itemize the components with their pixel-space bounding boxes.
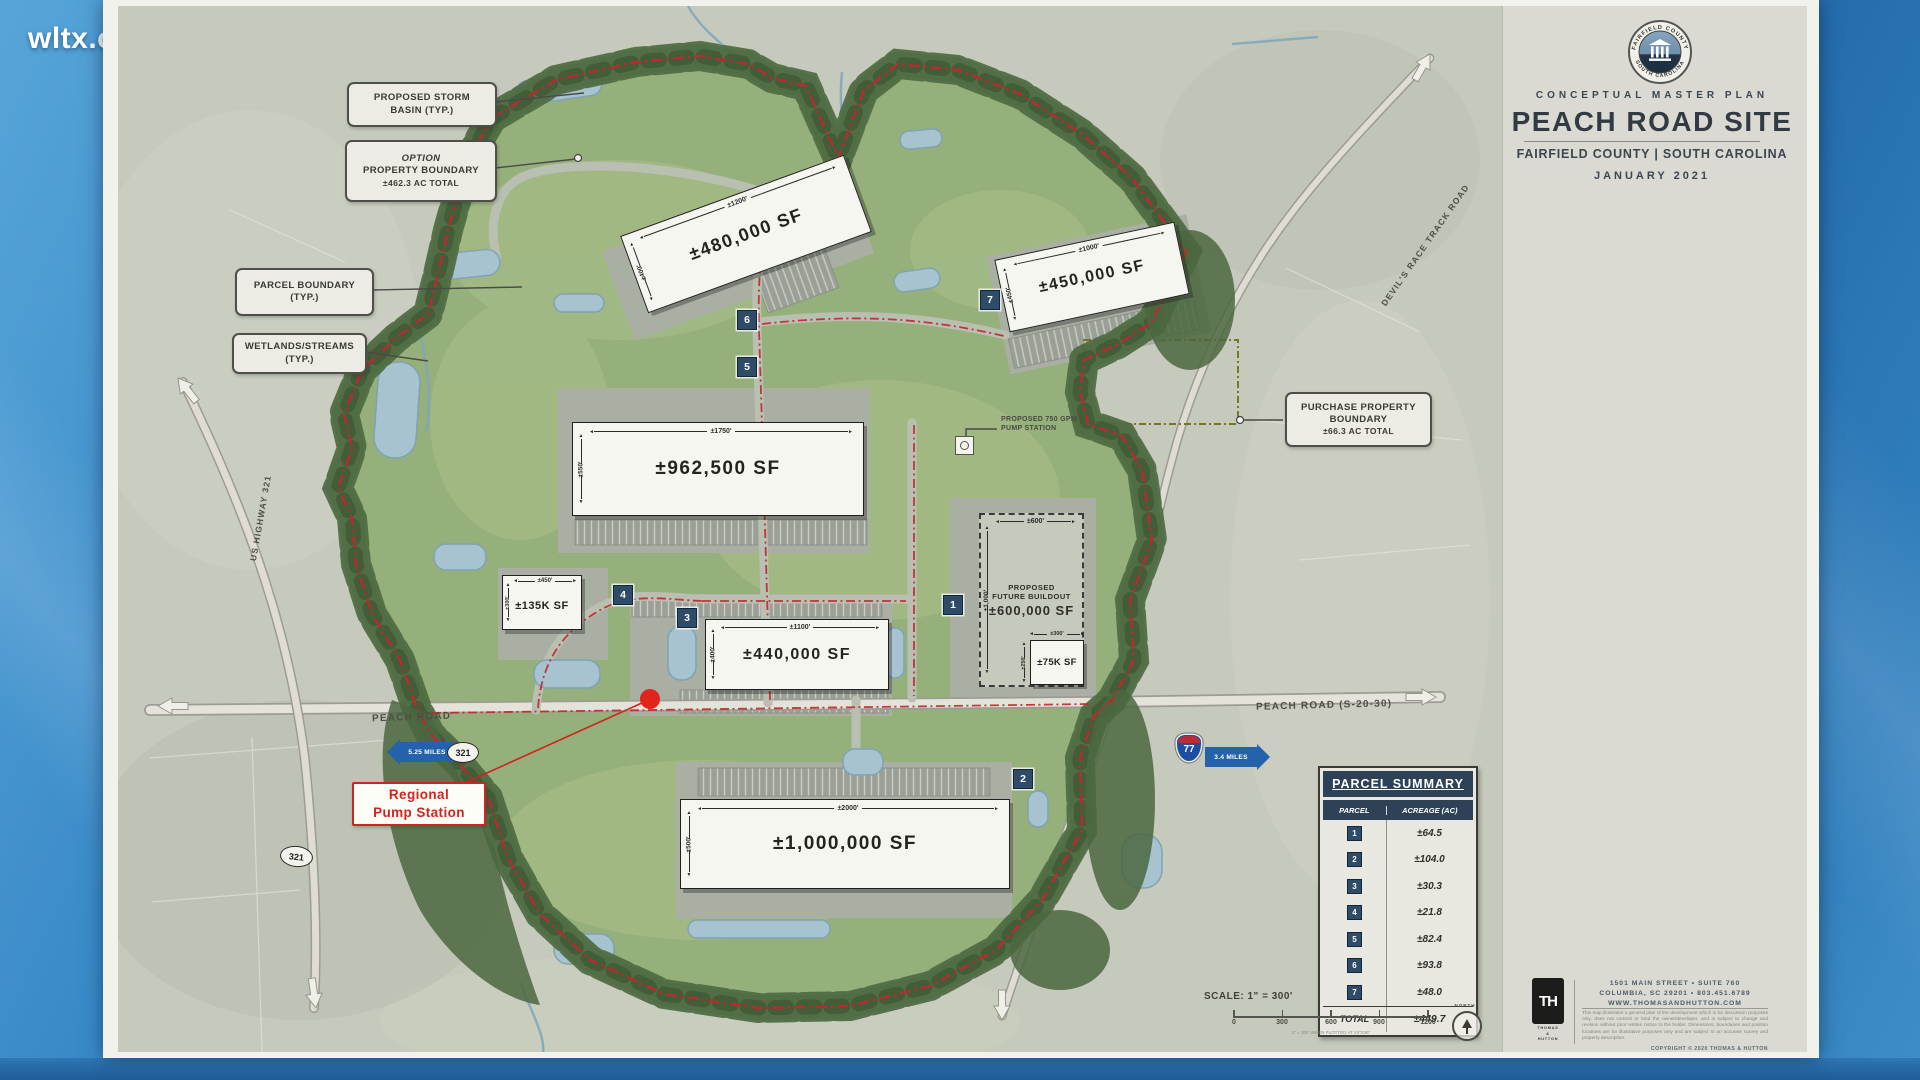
table-row: 1 ±64.5 [1323,820,1473,847]
row-parcel-badge: 1 [1347,826,1362,841]
parcel-badge-6: 6 [737,310,757,330]
firm-address-line1: 1501 MAIN STREET • SUITE 760 [1582,979,1768,989]
thomas-hutton-name: THOMAS&HUTTON [1524,1026,1572,1043]
miles-east-text: 3.4 MILES [1214,754,1247,761]
callout-text: PROPERTY BOUNDARY [363,165,479,177]
scale-tick: 1200 [1420,1019,1436,1026]
plan-date: JANUARY 2021 [1502,170,1802,182]
title-divider [1524,141,1760,142]
callout-text: PROPOSED STORM [374,92,470,104]
firm-disclaimer: This map illustrates a general plan of t… [1582,1011,1768,1042]
north-label: NORTH [1443,1003,1487,1008]
callout-text: (TYP.) [290,292,319,304]
miles-arrow-west: 5.25 MILES [400,742,454,762]
scale-tick: 300 [1276,1019,1288,1026]
callout-text: ±66.3 AC TOTAL [1323,426,1394,437]
row-parcel-badge: 5 [1347,932,1362,947]
table-row: 2 ±104.0 [1323,847,1473,874]
callout-text: Pump Station [373,804,465,822]
firm-address-line2: COLUMBIA, SC 29201 • 803.451.6789 [1582,989,1768,999]
future-buildout-sf: ±600,000 SF [989,603,1074,618]
table-body: 1 ±64.5 2 ±104.0 3 ±30.3 4 ±21.8 5 ±82.4… [1323,820,1473,1006]
row-parcel-badge: 4 [1347,905,1362,920]
future-buildout-line1: PROPOSED [1008,583,1055,592]
pump-750-label-line1: PROPOSED 750 GPM [1001,416,1077,423]
broadcast-frame: wltx.com [0,0,1920,1080]
thomas-hutton-logo: TH [1532,978,1564,1024]
firm-divider-vertical [1574,980,1575,1044]
building-962k-label: ±962,500 SF [573,423,863,515]
row-acreage: ±64.5 [1386,828,1473,839]
table-row: 3 ±30.3 [1323,873,1473,900]
callout-option-boundary: OPTION PROPERTY BOUNDARY ±462.3 AC TOTAL [345,140,497,202]
scale-tick: 600 [1325,1019,1337,1026]
callout-text: BOUNDARY [1330,414,1388,426]
parcel-badge-7: 7 [980,290,1000,310]
building-440k: ±1100' ±400' ±440,000 SF [705,619,889,690]
callout-text: Regional [389,786,449,804]
callout-regional-pump-station: Regional Pump Station [352,782,486,826]
dimension-75k-width: ±250' [1019,641,1029,684]
building-440k-label: ±440,000 SF [706,620,888,689]
dimension-75k-length: ±300' [1029,631,1085,637]
callout-storm-basin: PROPOSED STORM BASIN (TYP.) [347,82,497,127]
row-parcel-badge: 6 [1347,958,1362,973]
col-parcel: PARCEL [1323,806,1386,815]
row-acreage: ±93.8 [1386,960,1473,971]
scale-label: SCALE: 1" = 300' [1204,991,1293,1002]
parcel-badge-2: 2 [1013,769,1033,789]
table-row: 4 ±21.8 [1323,900,1473,927]
north-arrow [1452,1011,1482,1041]
parcel-summary-table: PARCEL SUMMARY PARCEL ACREAGE (AC) 1 ±64… [1318,766,1478,1037]
future-buildout-line2: FUTURE BUILDOUT [992,592,1071,601]
miles-arrow-east: 3.4 MILES [1205,747,1257,767]
callout-text: ±462.3 AC TOTAL [383,178,459,189]
callout-wetlands: WETLANDS/STREAMS (TYP.) [232,333,367,374]
us-321-shield: 321 [447,742,479,763]
row-acreage: ±104.0 [1386,854,1473,865]
pump-750-label-line2: PUMP STATION [1001,425,1056,432]
parcel-badge-1: 1 [943,595,963,615]
parcel-badge-4: 4 [613,585,633,605]
parcel-badge-5: 5 [737,357,757,377]
row-acreage: ±48.0 [1386,987,1473,998]
firm-divider-horizontal [1582,1008,1768,1009]
pump-station-marker [955,436,974,455]
building-75k-label: ±75K SF [1031,641,1083,684]
callout-text: WETLANDS/STREAMS [245,341,354,353]
callout-purchase-boundary: PURCHASE PROPERTY BOUNDARY ±66.3 AC TOTA… [1285,392,1432,447]
scale-note: 1" = 300' WHEN PLOTTED AT 24"X36" [1240,1030,1422,1035]
col-acreage: ACREAGE (AC) [1386,806,1473,815]
title-panel [1502,6,1807,1052]
building-962k: ±1750' ±550' ±962,500 SF [572,422,864,516]
callout-text: BASIN (TYP.) [390,105,453,117]
callout-parcel-boundary: PARCEL BOUNDARY (TYP.) [235,268,374,316]
aerial-map-area [118,6,1502,1052]
row-acreage: ±21.8 [1386,907,1473,918]
callout-text: PARCEL BOUNDARY [254,280,355,292]
location-subtitle: FAIRFIELD COUNTY | SOUTH CAROLINA [1502,147,1802,161]
building-1000k-label: ±1,000,000 SF [681,800,1009,888]
firm-address: 1501 MAIN STREET • SUITE 760 COLUMBIA, S… [1582,979,1768,1009]
building-135k-label: ±135K SF [503,576,581,629]
miles-west-text: 5.25 MILES [408,749,445,756]
firm-copyright: COPYRIGHT © 2020 THOMAS & HUTTON [1582,1046,1768,1052]
scale-bar: 0 300 600 900 1200 [1233,1010,1429,1030]
dimension-600k-width: ±1,000' [982,525,992,675]
i77-number: 77 [1177,744,1201,755]
row-acreage: ±30.3 [1386,881,1473,892]
lower-blue-strip [0,1058,1920,1080]
site-name-title: PEACH ROAD SITE [1502,106,1802,138]
table-row: 5 ±82.4 [1323,926,1473,953]
table-row: 6 ±93.8 [1323,953,1473,980]
table-header: PARCEL ACREAGE (AC) [1323,800,1473,820]
scale-tick: 900 [1373,1019,1385,1026]
dimension-600k-length: ±600' [995,518,1076,525]
row-acreage: ±82.4 [1386,934,1473,945]
building-135k: ±450' ±300' ±135K SF [502,575,582,630]
plan-type-title: CONCEPTUAL MASTER PLAN [1512,90,1792,101]
row-parcel-badge: 2 [1347,852,1362,867]
callout-text: OPTION [402,153,441,165]
table-title: PARCEL SUMMARY [1323,771,1473,797]
callout-text: PURCHASE PROPERTY [1301,402,1416,414]
callout-text: (TYP.) [285,354,314,366]
table-row: 7 ±48.0 [1323,979,1473,1006]
building-75k: ±300' ±250' ±75K SF [1030,640,1084,685]
scale-tick: 0 [1232,1019,1236,1026]
row-parcel-badge: 3 [1347,879,1362,894]
row-parcel-badge: 7 [1347,985,1362,1000]
building-1000k: ±2000' ±500' ±1,000,000 SF [680,799,1010,889]
parcel-badge-3: 3 [677,608,697,628]
